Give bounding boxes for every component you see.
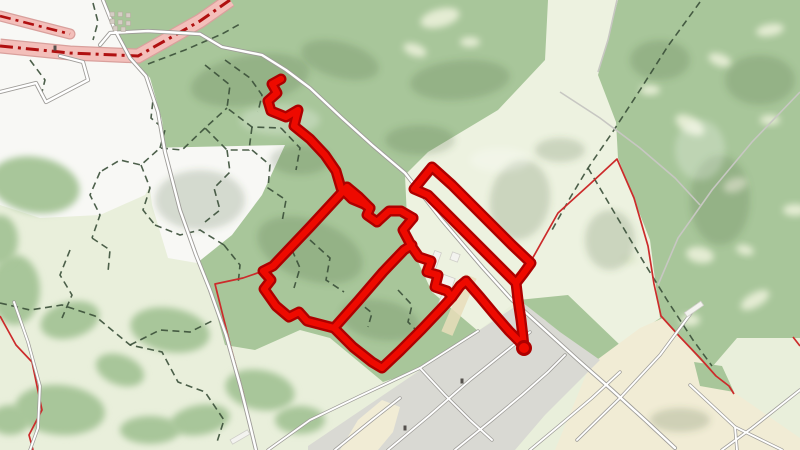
hillshade-highlight: [470, 148, 530, 172]
building: [110, 12, 115, 17]
route-endpoint-marker-core: [519, 343, 529, 353]
map-symbol: [54, 46, 57, 51]
forest-clearing: [460, 37, 480, 47]
hillshade-patch: [725, 55, 795, 105]
hillshade-patch: [155, 170, 245, 230]
building: [118, 20, 123, 25]
map-viewport[interactable]: [0, 0, 800, 450]
building: [121, 27, 126, 32]
building: [126, 13, 131, 18]
map-symbol: [404, 426, 407, 431]
forest-clearing: [640, 85, 660, 95]
hillshade-patch: [585, 210, 635, 270]
map-symbol: [461, 379, 464, 384]
hillshade-patch: [650, 408, 710, 432]
hillshade-patch: [385, 125, 455, 155]
building: [126, 21, 131, 26]
building: [118, 12, 123, 17]
hillshade-highlight: [675, 120, 725, 180]
forest-patch: [275, 406, 325, 434]
building: [113, 26, 118, 31]
building: [110, 19, 115, 24]
map-canvas[interactable]: [0, 0, 800, 450]
hillshade-patch: [535, 138, 585, 162]
forest-patch: [120, 416, 180, 444]
